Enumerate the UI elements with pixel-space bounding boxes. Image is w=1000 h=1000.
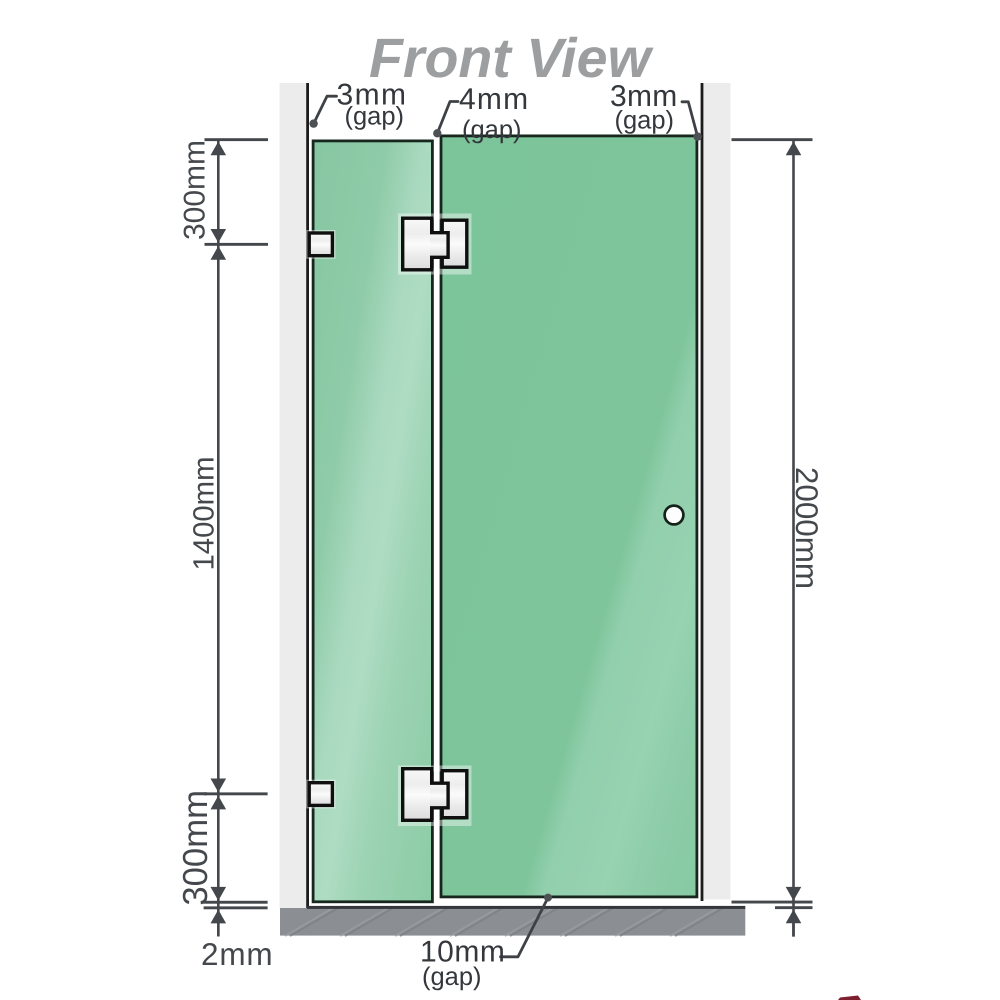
svg-text:(gap): (gap): [422, 963, 482, 991]
svg-text:(gap): (gap): [462, 116, 522, 144]
svg-text:1400mm: 1400mm: [188, 457, 221, 571]
svg-text:300mm: 300mm: [177, 790, 215, 906]
svg-text:(gap): (gap): [345, 103, 405, 131]
svg-text:(gap): (gap): [615, 106, 675, 134]
svg-text:2000mm: 2000mm: [789, 467, 824, 589]
svg-text:2mm: 2mm: [201, 936, 273, 972]
svg-text:300mm: 300mm: [178, 140, 211, 240]
svg-text:4mm: 4mm: [459, 83, 529, 116]
